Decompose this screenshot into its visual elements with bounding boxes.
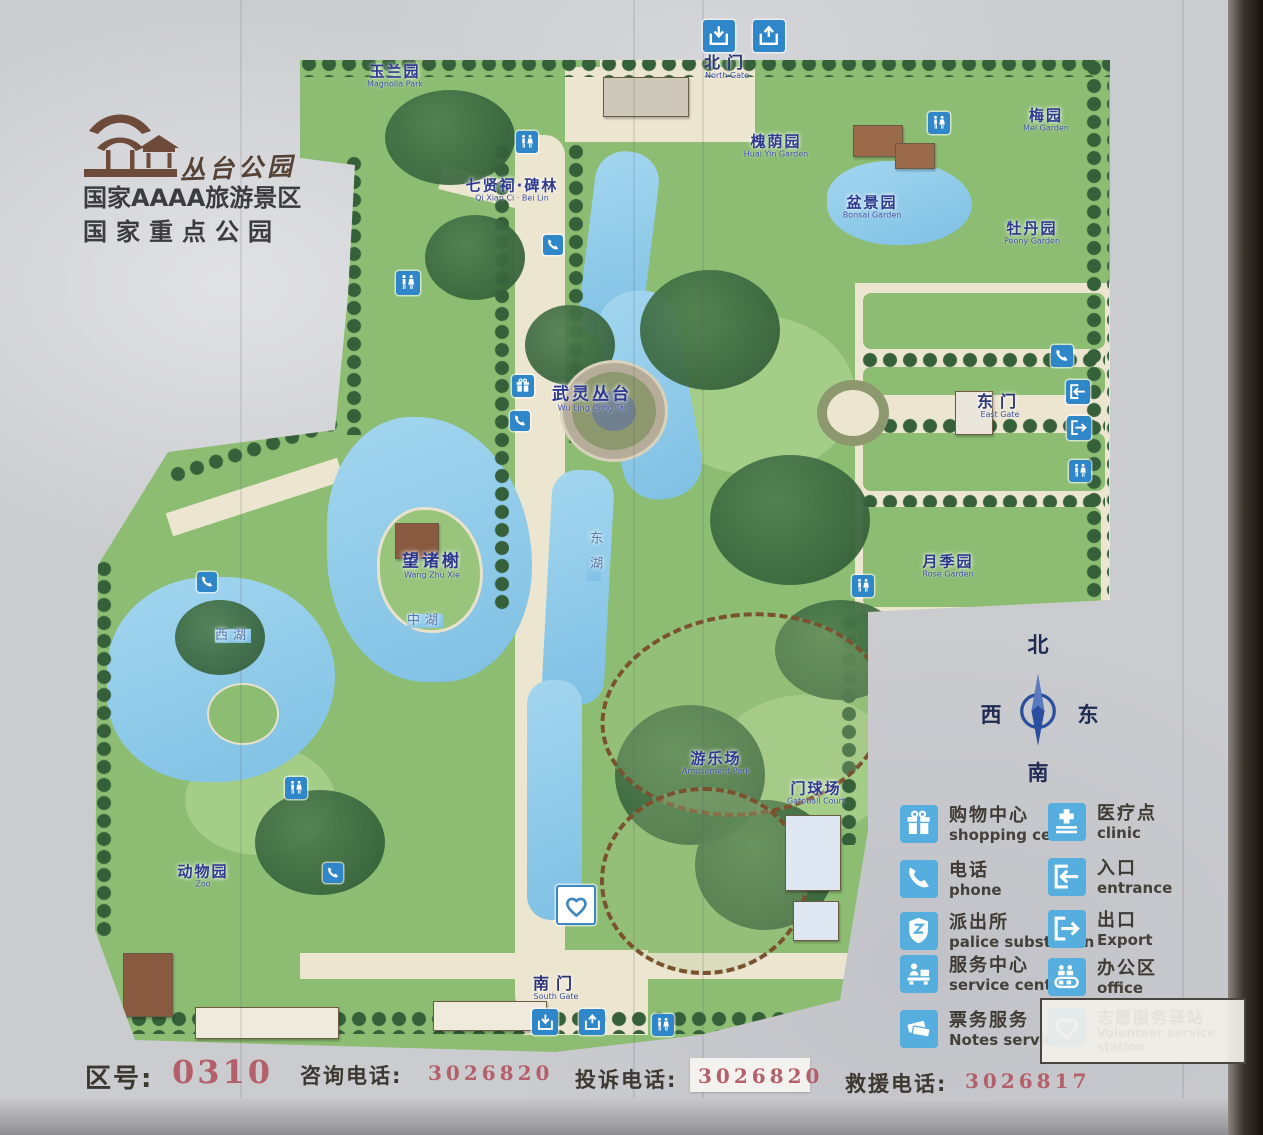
map-label-zh: 东湖 — [587, 531, 601, 581]
entrance-icon — [1048, 858, 1086, 896]
map-label-en: North Gate — [704, 71, 750, 80]
map-label-zh: 武灵丛台 — [552, 385, 632, 404]
gift-icon — [512, 375, 534, 397]
toilet-icon — [852, 575, 874, 597]
map-label-en: Peony Garden — [1004, 237, 1060, 246]
map-label-zh: 中湖 — [407, 614, 443, 628]
gift-icon — [900, 805, 938, 843]
map-label-zh: 牡丹园 — [1004, 220, 1060, 237]
map-label-zh: 玉兰园 — [367, 63, 423, 80]
legend-label-en: clinic — [1097, 825, 1157, 842]
map-label-peony-garden: 牡丹园Peony Garden — [1004, 220, 1060, 245]
arrow-up-icon — [579, 1009, 605, 1035]
legend-item-exit: 出口Export — [1048, 910, 1153, 949]
map-sign-board: 丛台公园 国家AAAA旅游景区 国家重点公园 北 西 东 南 区号: 0310 … — [0, 0, 1263, 1135]
legend-label-zh: 医疗点 — [1097, 803, 1157, 825]
legend-item-clinic: 医疗点clinic — [1048, 803, 1157, 842]
toilet-icon — [396, 271, 420, 295]
map-label-north-gate: 北门North Gate — [704, 54, 750, 80]
office-icon — [1048, 958, 1086, 996]
map-label-en: Mei Garden — [1023, 124, 1069, 133]
volunteer-legend-box — [1040, 998, 1246, 1064]
arrow-down-icon — [703, 20, 735, 52]
map-label-en: Qi Xian Ci · Bei Lin — [466, 194, 559, 203]
legend-item-office: 办公区office — [1048, 958, 1157, 997]
toilet-icon — [652, 1014, 674, 1036]
map-label-south-gate: 南门South Gate — [533, 975, 579, 1001]
clinic-icon — [1048, 803, 1086, 841]
map-label-en: Amusement Park — [682, 767, 750, 776]
map-label-zh: 西湖 — [215, 629, 251, 643]
map-label-en: Magnolia Park — [367, 80, 423, 89]
map-label-east-gate: 东门East Gate — [977, 393, 1023, 419]
map-label-zh: 东门 — [977, 393, 1023, 411]
legend-label-zh: 入口 — [1097, 858, 1172, 880]
legend-item-service: 服务中心service center — [900, 955, 1069, 994]
map-label-en: East Gate — [977, 410, 1023, 419]
map-label-bonsai-garden: 盆景园Bonsai Garden — [843, 194, 902, 219]
legend-text: 出口Export — [1097, 910, 1153, 949]
legend-item-entrance: 入口entrance — [1048, 858, 1172, 897]
map-label-zh: 北门 — [704, 54, 750, 72]
phone-icon — [197, 572, 217, 592]
map-annotations-layer: 玉兰园Magnolia Park北门North Gate梅园Mei Garden… — [0, 0, 1263, 1135]
map-label-en: South Gate — [533, 992, 579, 1001]
map-label-amusement-park: 游乐场Amusement Park — [682, 750, 750, 775]
legend-text: 医疗点clinic — [1097, 803, 1157, 842]
legend-label-zh: 电话 — [949, 860, 1002, 882]
arrow-down-icon — [532, 1009, 558, 1035]
legend-text: 电话phone — [949, 860, 1002, 899]
phone-icon — [543, 235, 563, 255]
toilet-icon — [1069, 460, 1091, 482]
service-icon — [900, 955, 938, 993]
heart-icon — [556, 885, 596, 925]
map-label-zoo: 动物园Zoo — [177, 863, 228, 888]
map-label-zh: 动物园 — [177, 863, 228, 880]
map-label-rose-garden: 月季园Rose Garden — [922, 553, 973, 578]
legend-text: 入口entrance — [1097, 858, 1172, 897]
exit-icon — [1067, 416, 1091, 440]
map-label-wu-ling-cong-tai: 武灵丛台Wu Ling Cong Tai — [552, 385, 632, 412]
phone-icon — [1051, 345, 1073, 367]
phone-icon — [323, 863, 343, 883]
map-label-magnolia-park: 玉兰园Magnolia Park — [367, 63, 423, 88]
map-label-lake-12: 中湖 — [407, 614, 443, 628]
entrance-icon — [1066, 380, 1090, 404]
map-label-en: Bonsai Garden — [843, 211, 902, 220]
map-label-zh: 南门 — [533, 975, 579, 993]
map-label-gateball-court: 门球场Gateball Court — [787, 780, 845, 805]
legend-label-en: phone — [949, 882, 1002, 899]
legend-label-en: entrance — [1097, 880, 1172, 897]
map-label-en: Gateball Court — [787, 797, 845, 806]
map-label-zh: 望诸榭 — [402, 552, 462, 571]
map-label-zh: 月季园 — [922, 553, 973, 570]
phone-icon — [510, 411, 530, 431]
legend-label-en: Export — [1097, 932, 1153, 949]
toilet-icon — [928, 112, 950, 134]
legend-item-phone: 电话phone — [900, 860, 1002, 899]
map-label-mei-garden: 梅园Mei Garden — [1023, 107, 1069, 132]
map-label-qi-xian-ci-bei-lin: 七贤祠·碑林Qi Xian Ci · Bei Lin — [466, 177, 559, 202]
legend-text: 办公区office — [1097, 958, 1157, 997]
legend-label-en: office — [1097, 980, 1157, 997]
arrow-up-icon — [753, 20, 785, 52]
toilet-icon — [285, 777, 307, 799]
exit-icon — [1048, 910, 1086, 948]
map-label-lake-11: 西湖 — [215, 629, 251, 643]
map-label-en: Rose Garden — [922, 570, 973, 579]
map-label-en: Huai Yin Garden — [744, 150, 809, 159]
map-label-zh: 槐荫园 — [744, 133, 809, 150]
map-label-lake-13: 东湖 — [587, 531, 601, 581]
map-label-zh: 七贤祠·碑林 — [466, 177, 559, 194]
map-label-zh: 梅园 — [1023, 107, 1069, 124]
map-label-zh: 游乐场 — [682, 750, 750, 767]
phone-icon — [900, 860, 938, 898]
map-label-huai-yin-garden: 槐荫园Huai Yin Garden — [744, 133, 809, 158]
legend-label-zh: 办公区 — [1097, 958, 1157, 980]
legend-label-zh: 出口 — [1097, 910, 1153, 932]
map-label-zh: 门球场 — [787, 780, 845, 797]
ticket-icon — [900, 1010, 938, 1048]
map-label-wang-zhu-xie: 望诸榭Wang Zhu Xie — [402, 552, 462, 579]
map-label-zh: 盆景园 — [843, 194, 902, 211]
map-label-en: Zoo — [177, 880, 228, 889]
map-label-en: Wu Ling Cong Tai — [552, 404, 632, 413]
map-label-en: Wang Zhu Xie — [402, 571, 462, 580]
police-icon — [900, 912, 938, 950]
toilet-icon — [516, 131, 538, 153]
